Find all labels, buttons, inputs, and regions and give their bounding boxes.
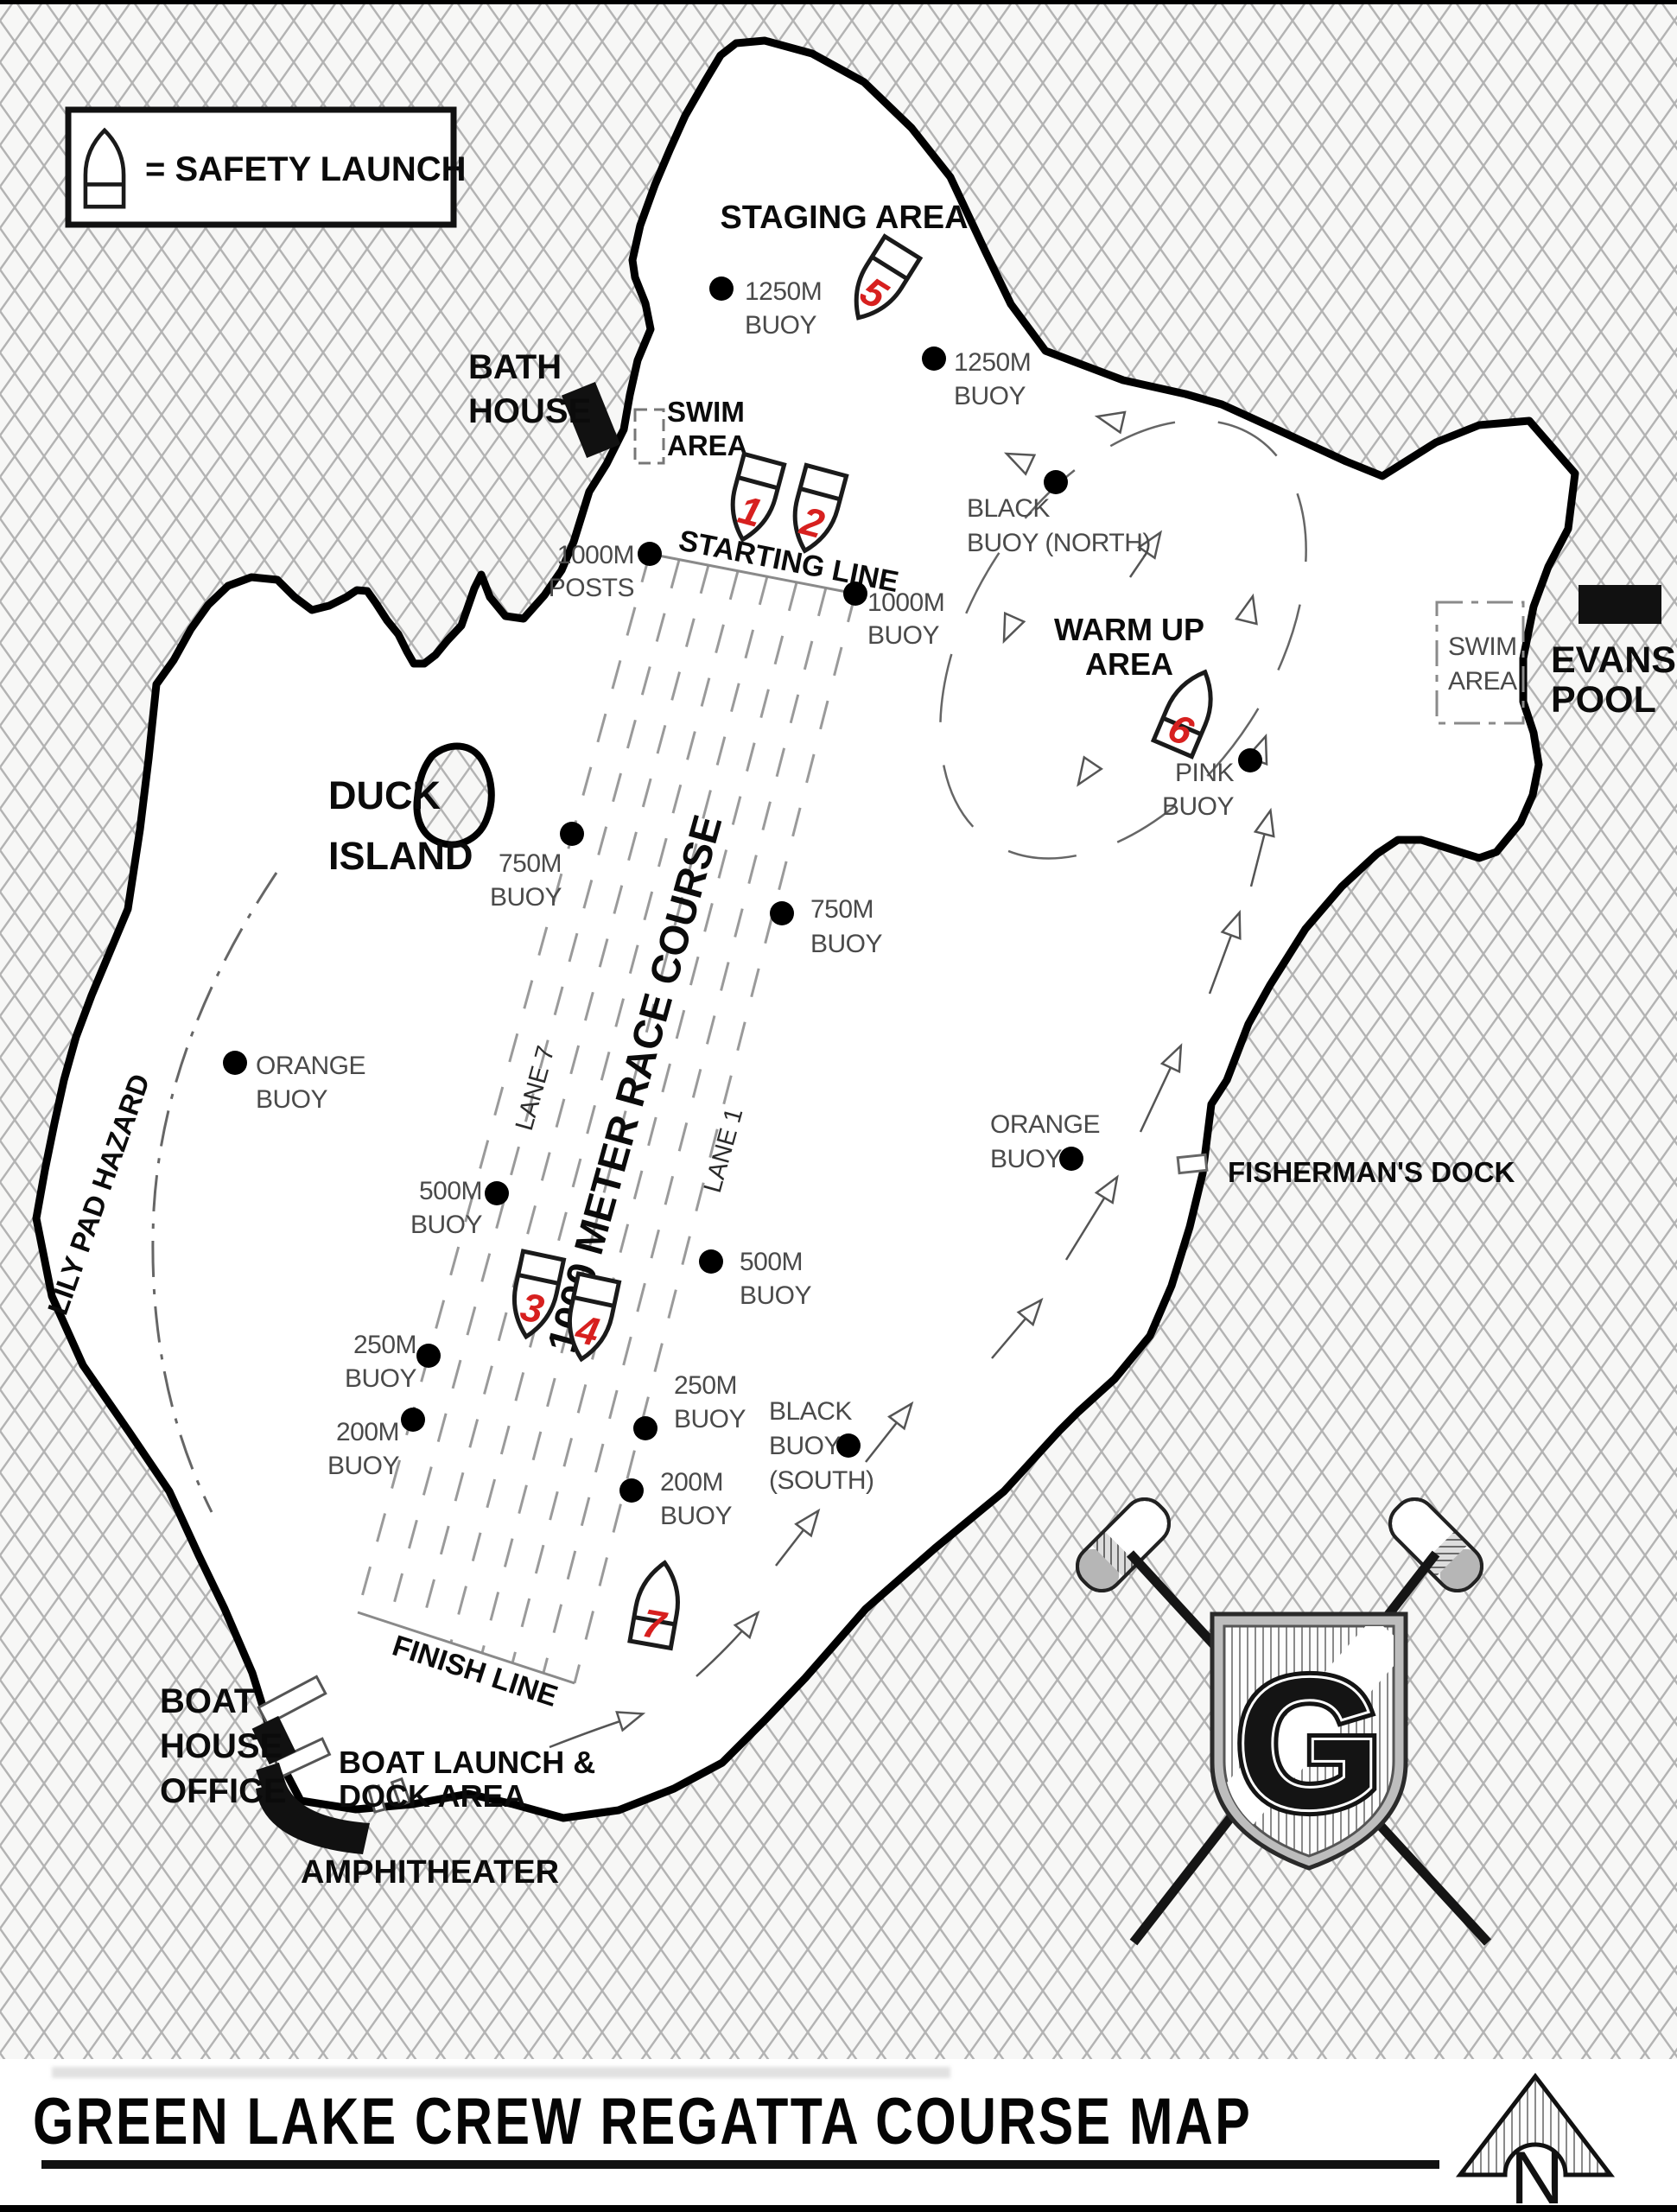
buoy-1250m-left-label-2: BUOY xyxy=(745,311,817,340)
buoy-750m-right-label-2: BUOY xyxy=(810,930,883,958)
swim-area-west-label-2: AREA xyxy=(667,429,748,461)
boat-house-office-label-3: OFFICE xyxy=(160,1772,287,1810)
buoy-black-north-label-2: BUOY (NORTH) xyxy=(967,529,1151,557)
staging-area-label: STAGING AREA xyxy=(720,200,968,236)
buoy-750m-right-label-1: 750M xyxy=(810,895,873,924)
buoy-pink-label-2: BUOY xyxy=(1162,792,1235,821)
buoy-750m-left-label-2: BUOY xyxy=(490,883,562,912)
evans-pool-building xyxy=(1579,585,1661,624)
buoy-1000m-posts-label-1: 1000M xyxy=(557,541,634,569)
swim-area-east-label-1: SWIM xyxy=(1448,632,1517,661)
buoy-1000m-label-1: 1000M xyxy=(867,588,944,617)
buoy-250m-left-label-1: 250M xyxy=(353,1331,416,1359)
bath-house-label-1: BATH xyxy=(468,348,562,386)
boat-house-office-label-1: BOAT xyxy=(160,1682,255,1720)
buoy-750m-left-label-1: 750M xyxy=(499,849,562,878)
fishermans-dock-structure xyxy=(1178,1154,1207,1173)
amphitheater-label: AMPHITHEATER xyxy=(301,1854,559,1891)
boat-launch-label-2: DOCK AREA xyxy=(339,1778,526,1814)
buoy-1250m-left-label-1: 1250M xyxy=(745,277,822,306)
buoy-250m-right-label-2: BUOY xyxy=(674,1405,746,1433)
buoy-250m-left-label-2: BUOY xyxy=(345,1364,417,1393)
warm-up-area-label-1: WARM UP xyxy=(1054,612,1204,647)
buoy-500m-left-label-1: 500M xyxy=(419,1177,482,1205)
map-title: GREEN LAKE CREW REGATTA COURSE MAP xyxy=(33,2085,1252,2158)
buoy-500m-right-label-2: BUOY xyxy=(740,1281,812,1310)
bottom-border xyxy=(0,2205,1677,2212)
buoy-200m-right-label-1: 200M xyxy=(660,1468,723,1497)
scan-artifact xyxy=(52,2067,950,2078)
boat-house-office-label-2: HOUSE xyxy=(160,1727,283,1765)
regatta-course-map: DUCK ISLAND 1000 METER RACE COURSE START… xyxy=(0,0,1677,2212)
buoy-200m-left-label-1: 200M xyxy=(336,1418,399,1446)
fishermans-dock-label: FISHERMAN'S DOCK xyxy=(1228,1156,1515,1188)
buoy-black-south-label-2: BUOY xyxy=(769,1432,842,1460)
title-divider xyxy=(41,2160,1439,2169)
north-arrow-letter: N xyxy=(1510,2137,1564,2212)
buoy-black-north-label-1: BLACK xyxy=(967,494,1050,523)
buoy-black-south-label-3: (SOUTH) xyxy=(769,1466,873,1495)
buoy-200m-right-label-2: BUOY xyxy=(660,1502,733,1530)
buoy-pink-label-1: PINK xyxy=(1175,759,1235,787)
buoy-1000m-label-2: BUOY xyxy=(867,621,940,650)
buoy-250m-right-label-1: 250M xyxy=(674,1371,737,1400)
legend-label: = SAFETY LAUNCH xyxy=(145,150,467,188)
buoy-1000m-posts-label-2: POSTS xyxy=(549,574,634,602)
duck-island-label-line1: DUCK xyxy=(328,773,441,817)
buoy-1250m-right-label-2: BUOY xyxy=(954,382,1026,410)
evans-pool-label-2: POOL xyxy=(1551,679,1656,721)
bath-house-label-2: HOUSE xyxy=(468,392,591,430)
buoy-orange-east-label-1: ORANGE xyxy=(990,1110,1100,1139)
buoy-1250m-right-label-1: 1250M xyxy=(954,348,1031,377)
footer: GREEN LAKE CREW REGATTA COURSE MAP N xyxy=(0,2059,1677,2212)
buoy-orange-west-label-2: BUOY xyxy=(256,1085,328,1114)
buoy-200m-left-label-2: BUOY xyxy=(327,1452,400,1480)
evans-pool-label-1: EVANS xyxy=(1551,639,1676,681)
buoy-orange-west-label-1: ORANGE xyxy=(256,1052,365,1080)
top-border xyxy=(0,0,1677,4)
legend: = SAFETY LAUNCH xyxy=(68,110,467,225)
buoy-500m-left-label-2: BUOY xyxy=(410,1211,483,1239)
buoy-500m-right-label-1: 500M xyxy=(740,1248,803,1276)
logo-letter: G xyxy=(1236,1639,1381,1847)
swim-area-east-label-2: AREA xyxy=(1448,667,1517,696)
duck-island-label-line2: ISLAND xyxy=(328,834,473,878)
buoy-orange-east-label-2: BUOY xyxy=(990,1145,1063,1173)
buoy-black-south-label-1: BLACK xyxy=(769,1397,852,1426)
swim-area-west-label-1: SWIM xyxy=(667,396,745,428)
warm-up-area-label-2: AREA xyxy=(1085,646,1173,682)
boat-launch-label-1: BOAT LAUNCH & xyxy=(339,1745,595,1780)
